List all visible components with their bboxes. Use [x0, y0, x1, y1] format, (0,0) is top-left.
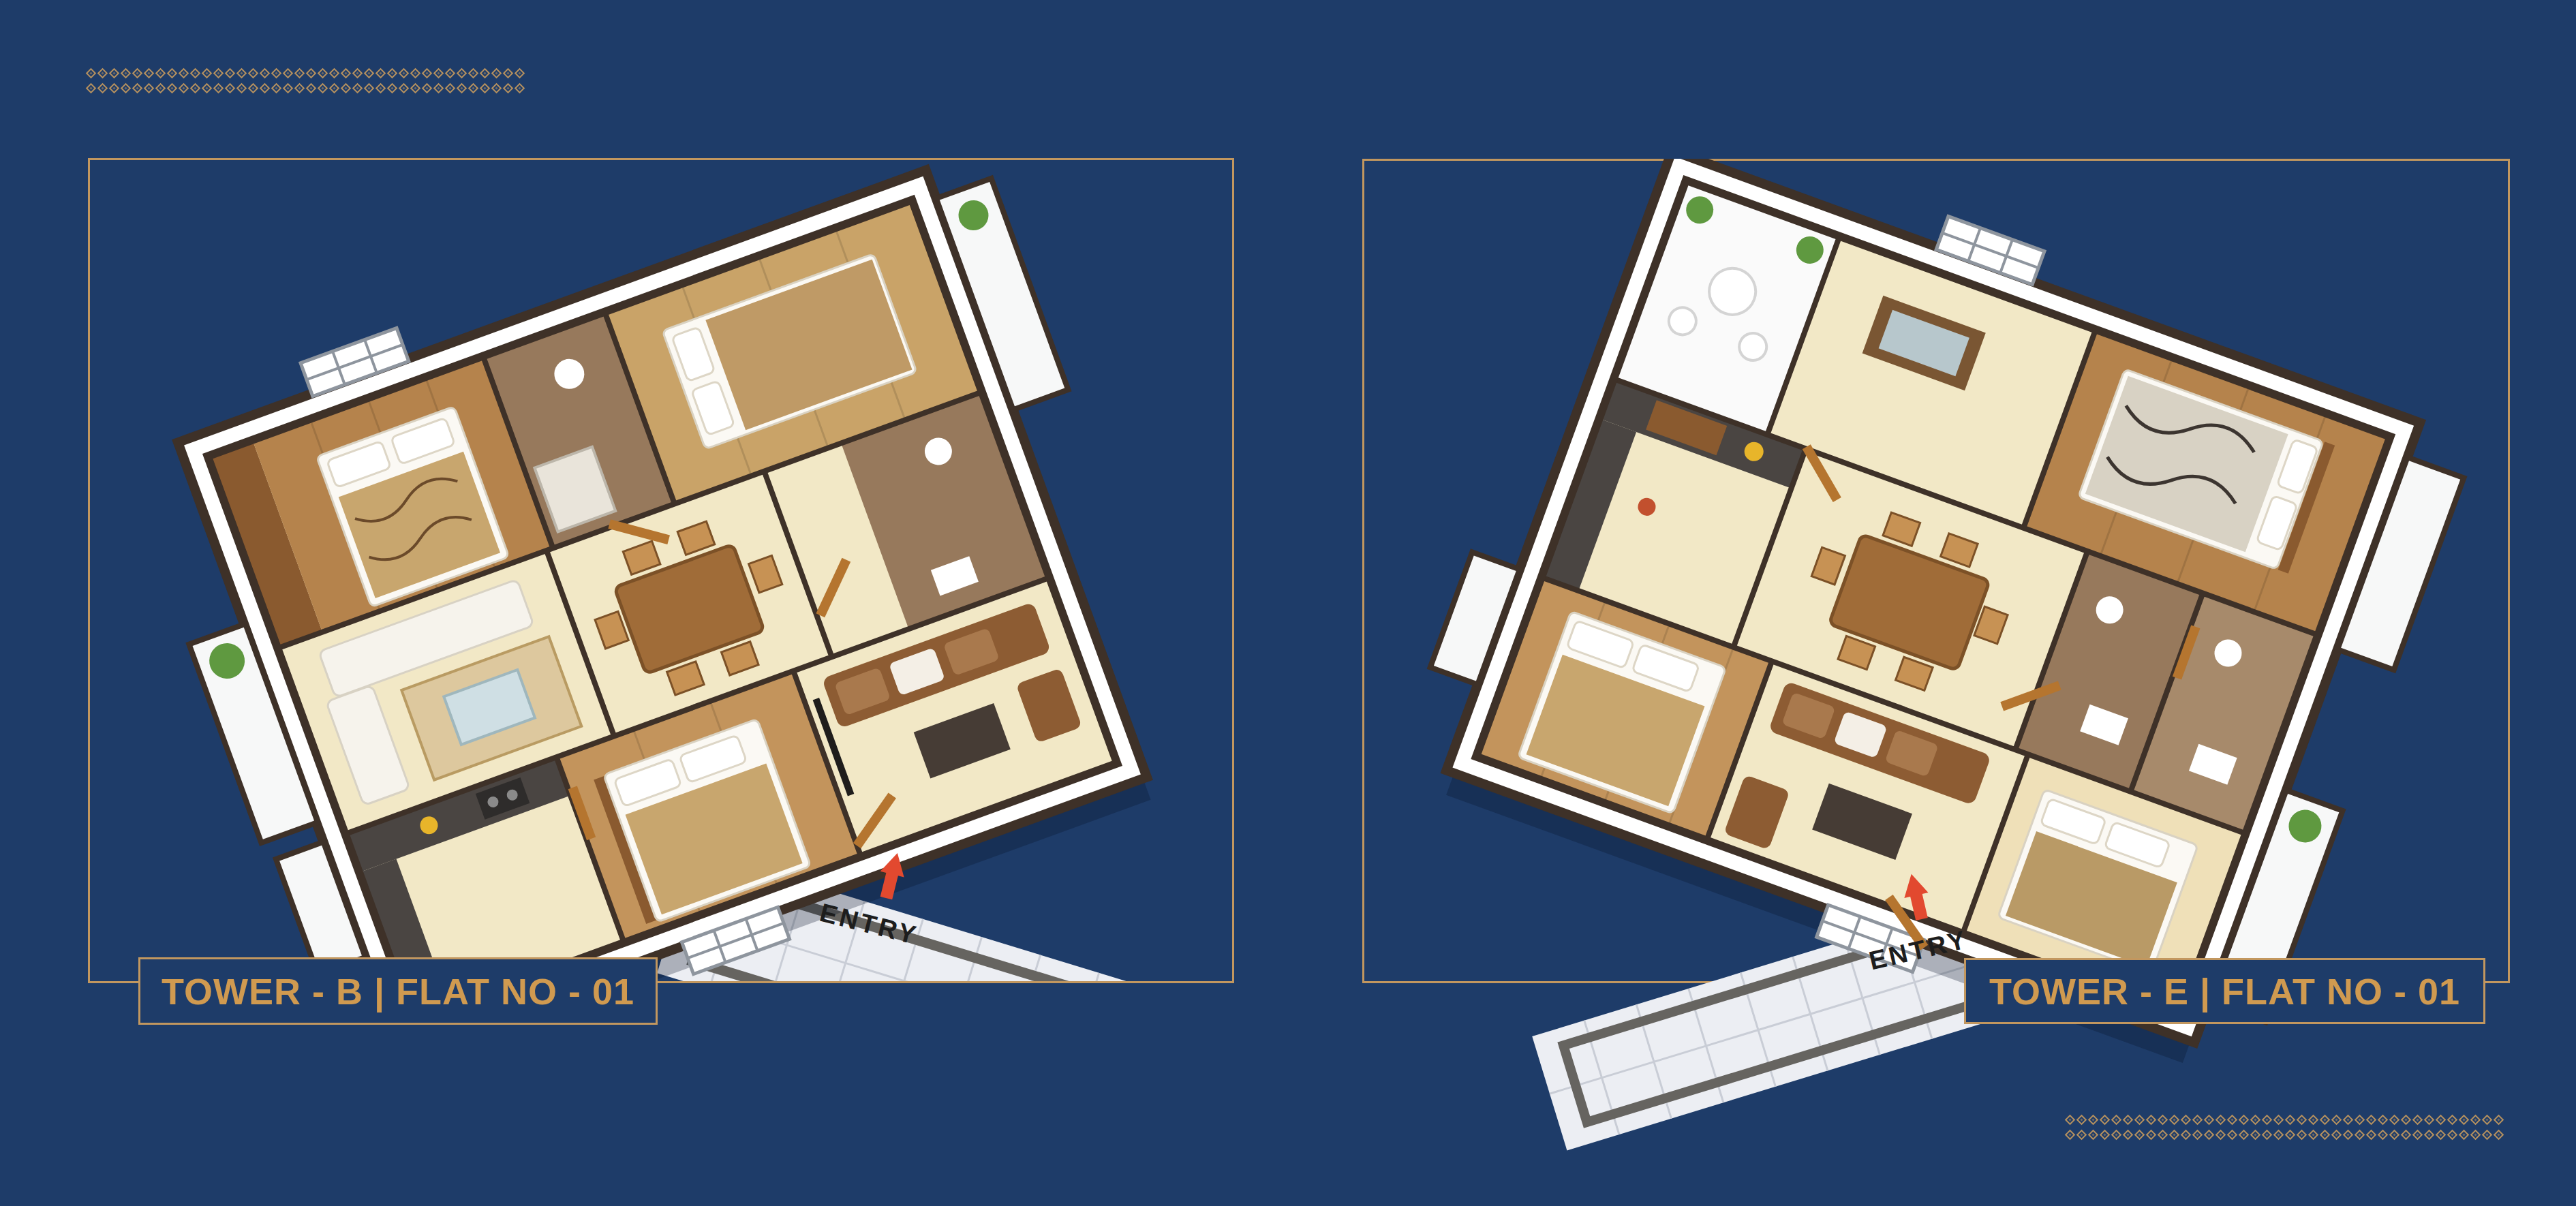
tower-label-left: TOWER - B | FLAT NO - 01 [138, 957, 658, 1025]
tower-label-right-text: TOWER - E | FLAT NO - 01 [1989, 970, 2460, 1012]
apartment-building-left [112, 160, 1212, 981]
tower-label-right: TOWER - E | FLAT NO - 01 [1964, 958, 2485, 1024]
ornament-top-left [87, 69, 523, 92]
floor-plan-left-illustration: ENTRY [90, 160, 1232, 981]
floor-plan-clip-left: ENTRY [90, 160, 1232, 981]
tower-label-left-text: TOWER - B | FLAT NO - 01 [162, 970, 634, 1012]
floor-plan-frame-left: ENTRY [88, 158, 1234, 983]
brochure-page: ENTRY [0, 0, 2576, 1206]
